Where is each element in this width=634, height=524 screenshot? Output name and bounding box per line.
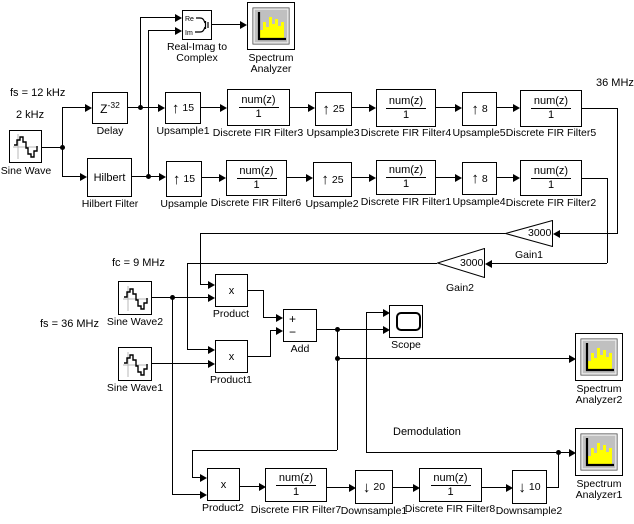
wire <box>582 108 617 109</box>
fir-numerator: num(z) <box>389 164 423 177</box>
fir-numerator: num(z) <box>534 165 568 178</box>
up-arrow-icon: ↑ <box>321 172 329 187</box>
discrete-fir-filter4-block[interactable]: num(z)1 <box>376 89 436 127</box>
wire <box>393 487 413 488</box>
arrowhead <box>383 326 390 334</box>
up-arrow-icon: ↑ <box>172 101 180 116</box>
wire <box>200 233 505 234</box>
wire <box>62 107 63 148</box>
discrete-fir-filter6-block[interactable]: num(z)1 <box>226 160 287 196</box>
wire <box>192 477 200 478</box>
simulink-model-canvas: fs = 12 kHz 2 kHz 36 MHz fc = 9 MHz fs =… <box>0 0 634 524</box>
delay-base: Z <box>100 102 107 116</box>
fir-denominator: 1 <box>447 486 453 499</box>
discrete-fir-filter2-block[interactable]: num(z)1 <box>520 160 582 196</box>
wire <box>62 147 63 177</box>
fir-numerator: num(z) <box>239 165 273 178</box>
wire <box>436 107 455 108</box>
upsample4-factor: 8 <box>482 173 488 185</box>
fir-denominator: 1 <box>403 109 409 122</box>
wire <box>558 452 569 453</box>
downsample1-block[interactable]: ↓20 <box>355 470 393 504</box>
upsample3-block[interactable]: ↑25 <box>315 92 352 126</box>
block-label: Gain2 <box>395 283 525 294</box>
upsample3-factor: 25 <box>333 103 345 115</box>
upsample2-factor: 25 <box>332 174 344 186</box>
wire <box>617 108 618 233</box>
arrowhead <box>220 104 227 112</box>
wire <box>482 487 506 488</box>
wire <box>366 452 558 453</box>
wire <box>337 358 569 359</box>
arrowhead <box>259 483 266 491</box>
gain1-value: 3000 <box>528 227 551 239</box>
arrowhead <box>413 484 420 492</box>
wire <box>560 233 618 234</box>
wire <box>327 487 349 488</box>
re-port-label: Re <box>185 16 194 23</box>
discrete-fir-filter7-block[interactable]: num(z)1 <box>265 468 327 502</box>
block-label-line2: Analyzer2 <box>534 395 634 406</box>
hilbert-filter-block[interactable]: Hilbert <box>87 158 132 197</box>
up-arrow-icon: ↑ <box>173 172 181 187</box>
wire <box>42 147 62 148</box>
real-imag-to-complex-block[interactable]: Re Im <box>182 10 212 40</box>
spectrum-analyzer-icon <box>248 3 294 49</box>
downsample1-factor: 20 <box>373 481 385 493</box>
wire <box>148 30 149 176</box>
wire <box>152 297 208 298</box>
arrowhead <box>455 174 462 182</box>
upsample4-block[interactable]: ↑8 <box>462 162 497 195</box>
block-label: Downsample2 <box>464 506 594 517</box>
product2-block[interactable]: x <box>207 468 240 501</box>
block-label-line2: Analyzer <box>206 64 336 75</box>
arrowhead <box>175 14 182 22</box>
wire <box>201 107 220 108</box>
wire <box>337 329 338 358</box>
wire <box>287 177 306 178</box>
upsample2-block[interactable]: ↑25 <box>313 162 352 197</box>
block-label-line2: Analyzer1 <box>534 490 634 501</box>
arrowhead <box>175 27 182 35</box>
wire <box>317 329 383 330</box>
delay-exponent: -32 <box>108 100 120 110</box>
block-label: Discrete FIR Filter2 <box>486 198 616 209</box>
arrowhead <box>569 355 576 363</box>
annotation-fc-9mhz: fc = 9 MHz <box>112 257 165 269</box>
spectrum-analyzer-icon <box>576 429 622 475</box>
discrete-fir-filter1-block[interactable]: num(z)1 <box>376 160 436 195</box>
arrowhead <box>80 173 87 181</box>
wire <box>366 312 383 313</box>
block-label: Scope <box>341 340 471 351</box>
spectrum-analyzer-icon <box>576 334 622 380</box>
arrowhead <box>349 484 356 492</box>
wire <box>62 176 80 177</box>
multiply-icon: x <box>221 479 227 491</box>
discrete-fir-filter5-block[interactable]: num(z)1 <box>520 90 582 127</box>
wire <box>352 177 369 178</box>
spectrum-analyzer-block[interactable] <box>247 2 295 50</box>
spectrum-analyzer1-block[interactable] <box>575 428 623 476</box>
annotation-fs-12khz: fs = 12 kHz <box>10 87 65 99</box>
upsample1-block[interactable]: ↑15 <box>165 92 201 124</box>
sine-wave-block[interactable] <box>9 130 42 163</box>
arrowhead <box>158 104 165 112</box>
arrowhead <box>369 104 376 112</box>
product-block[interactable]: x <box>215 274 248 307</box>
downsample2-factor: 10 <box>529 481 541 493</box>
arrowhead <box>208 360 215 368</box>
wire <box>187 349 208 350</box>
arrowhead <box>553 230 560 238</box>
wire <box>172 297 173 494</box>
arrowhead <box>513 174 520 182</box>
fir-numerator: num(z) <box>433 472 467 485</box>
gain2-block[interactable]: 3000 <box>437 248 485 278</box>
spectrum-analyzer2-block[interactable] <box>575 333 623 381</box>
upsample5-block[interactable]: ↑8 <box>462 92 497 126</box>
sine-wave-icon <box>120 283 151 314</box>
discrete-fir-filter3-block[interactable]: num(z)1 <box>227 89 290 126</box>
wire <box>202 177 219 178</box>
annotation-36mhz: 36 MHz <box>596 77 634 89</box>
arrowhead <box>200 491 207 499</box>
upsample-block[interactable]: ↑15 <box>166 161 202 197</box>
arrowhead <box>383 309 390 317</box>
wire <box>240 486 259 487</box>
wire <box>352 107 369 108</box>
arrowhead <box>208 346 215 354</box>
arrowhead <box>455 104 462 112</box>
wire <box>200 284 208 285</box>
wire <box>263 290 264 317</box>
minus-sign: − <box>289 327 296 337</box>
upsample-factor: 15 <box>183 173 195 185</box>
arrowhead <box>569 449 576 457</box>
block-label: Spectrum Analyzer <box>206 53 336 75</box>
sine-wave-icon <box>120 349 151 380</box>
fir-numerator: num(z) <box>241 94 275 107</box>
wire <box>366 312 367 452</box>
im-port-label: Im <box>185 30 193 37</box>
discrete-fir-filter8-block[interactable]: num(z)1 <box>419 468 482 502</box>
wire <box>62 107 85 108</box>
wire <box>128 107 158 108</box>
annotation-2khz: 2 kHz <box>16 109 44 121</box>
gain2-value: 3000 <box>460 257 483 269</box>
sine-wave1-block[interactable] <box>118 347 152 381</box>
wire <box>140 17 141 107</box>
wire <box>187 263 437 264</box>
wire <box>212 24 240 25</box>
wire <box>270 330 271 357</box>
hilbert-text: Hilbert <box>94 172 126 184</box>
scope-block[interactable] <box>389 305 423 338</box>
wire <box>148 30 175 31</box>
fir-denominator: 1 <box>403 178 409 191</box>
fir-numerator: num(z) <box>389 95 423 108</box>
wire <box>248 356 270 357</box>
wire <box>582 178 607 179</box>
arrowhead <box>219 174 226 182</box>
wire <box>172 494 200 495</box>
fir-numerator: num(z) <box>534 95 568 108</box>
arrowhead <box>200 474 207 482</box>
fir-denominator: 1 <box>548 179 554 192</box>
wire <box>152 363 208 364</box>
arrowhead <box>276 327 283 335</box>
arrowhead <box>485 260 492 268</box>
arrowhead <box>276 314 283 322</box>
arrowhead <box>208 281 215 289</box>
wire <box>192 450 193 477</box>
wire <box>436 177 455 178</box>
add-block[interactable]: + − <box>283 309 317 342</box>
down-arrow-icon: ↓ <box>363 480 371 495</box>
downsample2-block[interactable]: ↓10 <box>512 470 547 504</box>
up-arrow-icon: ↑ <box>322 102 330 117</box>
fir-denominator: 1 <box>253 179 259 192</box>
arrowhead <box>240 21 247 29</box>
wire <box>248 290 263 291</box>
wire <box>558 452 559 488</box>
real-imag-icon: Re Im <box>183 11 211 39</box>
fir-denominator: 1 <box>293 486 299 499</box>
wire <box>607 178 608 263</box>
wire <box>192 450 337 451</box>
sine-wave-icon <box>10 131 41 162</box>
delay-block[interactable]: Z-32 <box>92 92 128 124</box>
arrowhead <box>159 173 166 181</box>
arrowhead <box>208 294 215 302</box>
fir-denominator: 1 <box>255 108 261 121</box>
multiply-icon: x <box>229 351 235 363</box>
wire <box>547 487 558 488</box>
gain1-block[interactable]: 3000 <box>505 220 553 247</box>
annotation-demodulation: Demodulation <box>393 426 461 438</box>
block-label: Discrete FIR Filter5 <box>486 128 616 139</box>
wire <box>337 358 338 450</box>
wire <box>497 107 513 108</box>
multiply-icon: x <box>229 285 235 297</box>
scope-screen-icon <box>396 312 421 331</box>
arrowhead <box>85 104 92 112</box>
wire <box>200 233 201 284</box>
upsample5-factor: 8 <box>482 103 488 115</box>
wire <box>263 317 276 318</box>
wire <box>492 263 607 264</box>
plus-sign: + <box>289 314 296 324</box>
arrowhead <box>513 104 520 112</box>
upsample1-factor: 15 <box>182 102 194 114</box>
block-label: Spectrum Analyzer1 <box>534 479 634 501</box>
wire <box>497 177 513 178</box>
up-arrow-icon: ↑ <box>471 171 479 186</box>
arrowhead <box>306 174 313 182</box>
wire <box>290 107 308 108</box>
up-arrow-icon: ↑ <box>471 102 479 117</box>
arrowhead <box>506 484 513 492</box>
block-label: Spectrum Analyzer2 <box>534 384 634 406</box>
fir-denominator: 1 <box>548 109 554 122</box>
block-label: Product1 <box>166 375 296 386</box>
arrowhead <box>308 104 315 112</box>
sine-wave2-block[interactable] <box>118 281 152 315</box>
wire <box>187 263 188 349</box>
wire <box>140 17 175 18</box>
arrowhead <box>369 174 376 182</box>
down-arrow-icon: ↓ <box>518 480 526 495</box>
fir-numerator: num(z) <box>279 472 313 485</box>
